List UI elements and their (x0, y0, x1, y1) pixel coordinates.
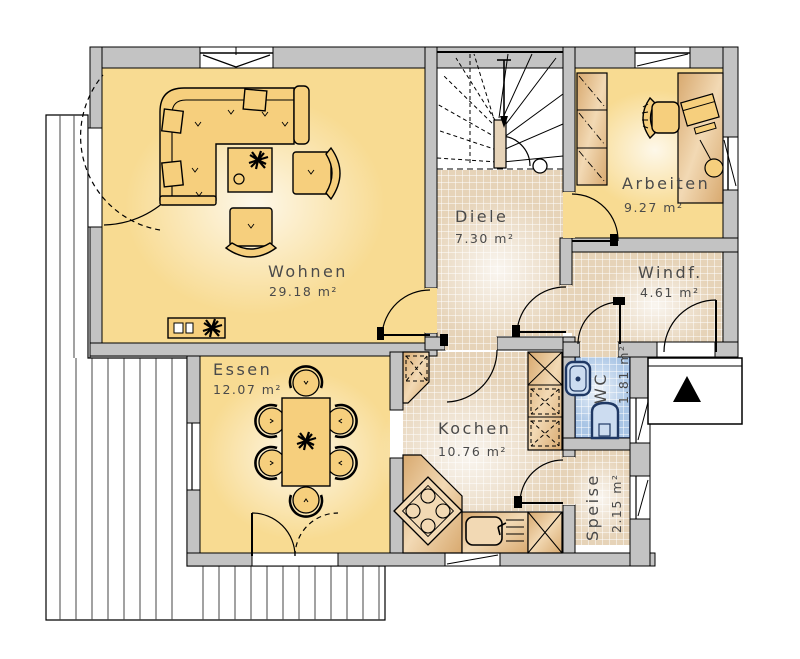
label-diele: Diele (455, 207, 508, 226)
area-kochen: 10.76 m² (438, 444, 507, 459)
tall-cabinets (528, 352, 562, 450)
wall-entry-right (715, 342, 738, 357)
floor-plan: Wohnen 29.18 m² Essen 12.07 m² Diele 7.3… (0, 0, 800, 659)
office-chair (642, 98, 679, 138)
label-wc: WC (591, 372, 610, 404)
kitchen-sink-basin (466, 517, 502, 545)
area-windfang: 4.61 m² (640, 285, 700, 300)
label-arbeiten: Arbeiten (622, 174, 710, 193)
coffee-table (228, 148, 272, 192)
stair-handrail-end (533, 159, 547, 173)
window-wc-right (630, 398, 650, 443)
cabinet-bottom-right (528, 512, 562, 553)
wall-stair-arbeiten (563, 47, 575, 192)
wall-wohnen-bottom (90, 343, 437, 356)
wall-exterior-right (723, 47, 738, 358)
wc-sink (566, 362, 590, 395)
area-wohnen: 29.18 m² (269, 284, 338, 299)
armchair-bottom (226, 208, 276, 257)
window-kochen-bottom (445, 553, 500, 566)
label-essen: Essen (213, 360, 272, 379)
label-speise: Speise (583, 473, 602, 541)
wall-exterior-right-lower (630, 345, 650, 566)
window-speise-right (630, 476, 650, 519)
area-diele: 7.30 m² (455, 231, 515, 246)
wall-essen-kochen-upper (390, 352, 403, 410)
wall-kochen-speise-lower (563, 505, 575, 553)
wall-diele-windfang (560, 238, 572, 285)
label-wohnen: Wohnen (268, 262, 348, 281)
wall-wohnen-diele (425, 47, 437, 288)
area-speise: 2.15 m² (609, 474, 624, 534)
armchair-right (293, 148, 340, 199)
floor-plan-svg: Wohnen 29.18 m² Essen 12.07 m² Diele 7.3… (0, 0, 800, 659)
window-essen-left (187, 423, 200, 490)
window-wohnen-top (200, 47, 273, 68)
label-windfang: Windf. (638, 263, 703, 282)
area-arbeiten: 9.27 m² (624, 200, 684, 215)
wall-wc-speise (563, 438, 630, 450)
wall-diele-kochen-right (497, 337, 563, 350)
wall-windfang-wc-a (563, 342, 580, 357)
window-arbeiten-right (723, 137, 738, 190)
area-wc: 1.81 m² (616, 345, 631, 405)
shelf (577, 73, 607, 185)
label-kochen: Kochen (438, 419, 511, 438)
toilet (592, 403, 618, 438)
area-essen: 12.07 m² (213, 382, 282, 397)
entrance-porch (648, 358, 742, 424)
window-arbeiten-top (635, 47, 690, 68)
sideboard (168, 318, 225, 338)
sink-counter (462, 512, 528, 553)
